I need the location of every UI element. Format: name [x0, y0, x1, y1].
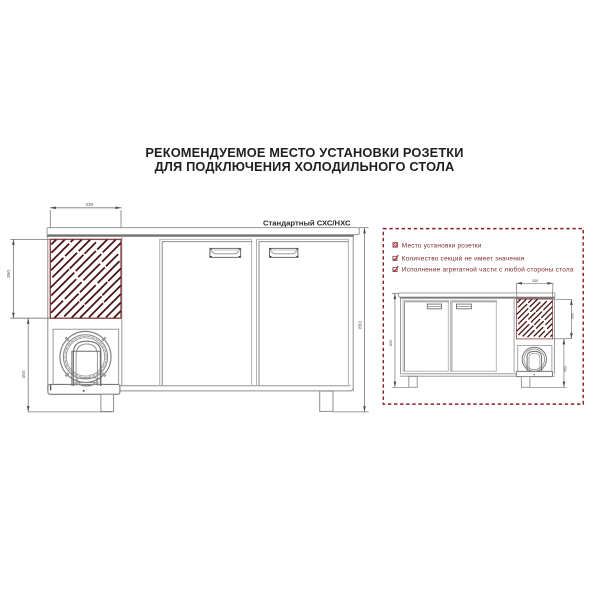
svg-text:350: 350: [6, 270, 12, 278]
svg-text:Место установки розетки: Место установки розетки: [402, 243, 482, 250]
svg-text:850: 850: [358, 321, 364, 329]
svg-text:330: 330: [85, 202, 93, 208]
svg-text:450: 450: [21, 370, 27, 378]
svg-text:350: 350: [570, 312, 575, 319]
svg-text:330: 330: [532, 278, 539, 283]
svg-text:850: 850: [388, 339, 393, 346]
svg-text:450: 450: [562, 365, 567, 372]
svg-text:Исполнение агрегатной части с: Исполнение агрегатной части с любой стор…: [402, 266, 574, 274]
svg-text:Стандартный СХС/НХС: Стандартный СХС/НХС: [263, 219, 351, 228]
svg-text:Количество секций не имеет зна: Количество секций не имеет значения: [402, 255, 525, 263]
